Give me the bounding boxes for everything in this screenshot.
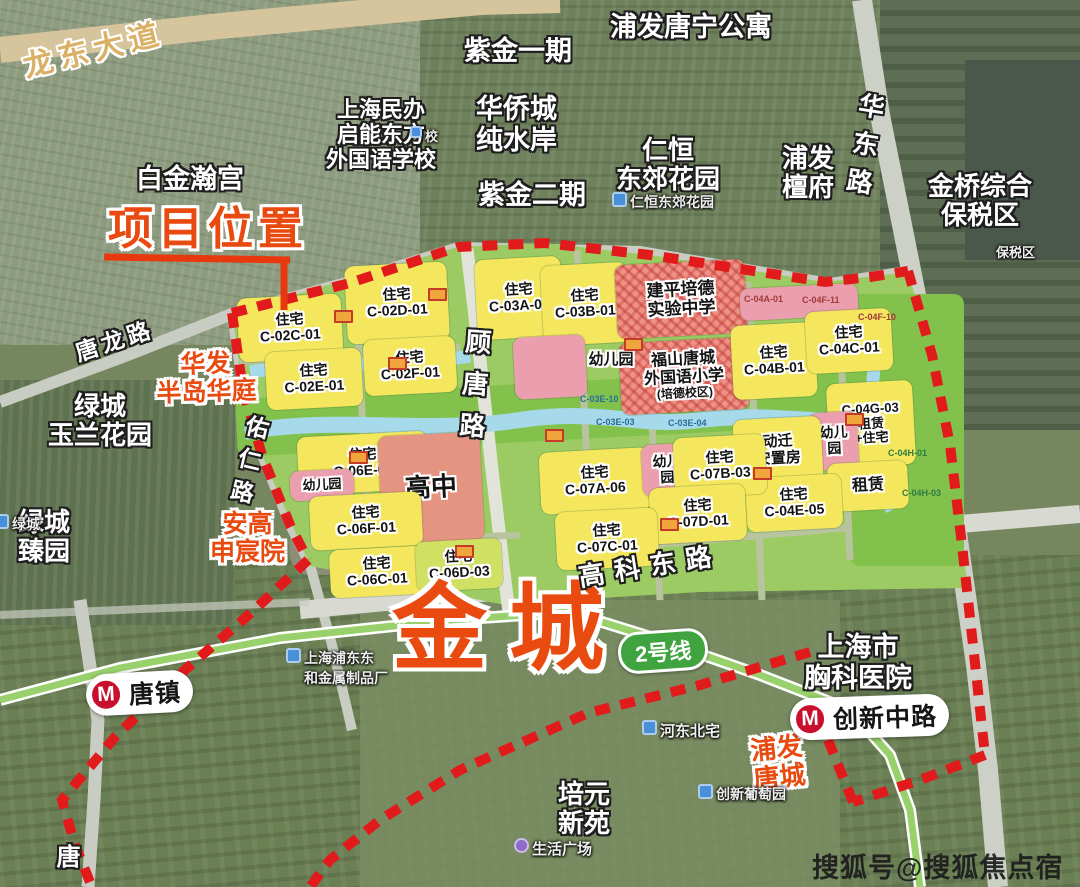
tiny-code: C-03E-03: [596, 417, 635, 427]
parcel-marker: [753, 467, 772, 480]
poi-icon: [642, 720, 657, 735]
poi-text: 创新葡萄园: [716, 784, 786, 804]
poi-text: 仁恒东郊花园: [630, 192, 714, 212]
landmark-chest-hospital: 上海市 胸科医院: [804, 632, 912, 693]
poi-icon: [0, 514, 9, 529]
watermark: 搜狐号@搜狐焦点宿州站: [812, 846, 1080, 887]
tiny-code: C-04H-03: [902, 488, 941, 498]
parcel-label: 住宅 C-04B-01: [743, 344, 805, 379]
minor-road: [0, 602, 310, 615]
landmark-lvcheng-yulan: 绿城 玉兰花园: [48, 392, 152, 451]
parcel-label: 住宅 C-03B-01: [554, 287, 616, 322]
landmark-huaqiaocheng: 华侨城 纯水岸: [476, 94, 557, 155]
poi-text: 河东北宅: [660, 720, 720, 741]
parcel-C-07D-01: 住宅 C-07D-01: [649, 484, 748, 545]
poi-text: 生活广场: [532, 838, 592, 859]
poi-text: 校: [425, 126, 438, 145]
tiny-code: C-03E-10: [580, 394, 619, 404]
metro-line2-badge: 2号线: [617, 627, 710, 675]
tiny-code: C-04F-11: [802, 295, 840, 305]
landmark-renheng: 仁恒 东郊花园: [616, 136, 720, 195]
landmark-angao: 安高 申宸院: [210, 510, 285, 567]
landmark-zijin-phase1: 紫金一期: [464, 36, 572, 67]
landmark-pufa-tangning: 浦发唐宁公寓: [610, 12, 772, 43]
school-campus-label: (培德校区): [657, 386, 714, 402]
parcel-label: 住宅 C-02E-01: [283, 362, 344, 397]
landmark-peiyuan: 培元 新苑: [558, 780, 610, 839]
parcel-marker: [334, 310, 353, 323]
poi-renheng-small: 仁恒东郊花园: [612, 192, 714, 212]
metro-logo-icon: M: [793, 703, 826, 736]
poi-baoshui-small: 保税区: [996, 242, 1035, 261]
parcel-marker: [349, 451, 368, 464]
parcel-label: 住宅 C-07A-06: [564, 464, 626, 499]
poi-putaoyuan: 创新葡萄园: [698, 784, 786, 804]
kindergarten-label: 幼儿园: [302, 477, 342, 494]
parcel-label: 住宅 C-04E-05: [763, 486, 824, 521]
tiny-code: C-04H-01: [888, 448, 927, 458]
metro-logo-icon: M: [89, 678, 123, 712]
parcel-label: 住宅 C-02D-01: [366, 286, 428, 321]
kindergarten-parcel: [512, 334, 587, 400]
landmark-jinqiao-bonded-zone: 金桥综合 保税区: [928, 172, 1032, 231]
road-label-tang-partial: 唐: [52, 844, 79, 868]
parcel-marker: [660, 518, 679, 531]
poi-metal-factory: 上海浦东东 和金属制品厂: [286, 648, 388, 688]
metro-station-tangzhen: M 唐镇: [85, 669, 194, 717]
kindergarten-label: 幼儿园: [578, 352, 644, 369]
project-location-callout: 项目位置: [108, 204, 308, 255]
tiny-code: C-04A-01: [744, 294, 783, 304]
parcel-label: 住宅 C-04C-01: [818, 324, 880, 359]
parcel-label: 租赁: [852, 476, 885, 496]
parcel-C-02F-01: 住宅 C-02F-01: [363, 336, 458, 397]
parcel-C-02E-01: 住宅 C-02E-01: [265, 348, 364, 411]
parcel-label: 住宅 C-02C-01: [259, 311, 321, 346]
poi-school-small: 校: [410, 126, 438, 145]
parcel-C-02D-01: 住宅 C-02D-01: [344, 261, 450, 344]
poi-hedong: 河东北宅: [642, 720, 720, 741]
parcel-C-06F-01: 住宅 C-06F-01: [309, 491, 424, 551]
satellite-planning-map: 住宅 C-02C-01 住宅 C-02D-01 住宅 C-02E-01 住宅 C…: [0, 0, 1080, 887]
poi-shenghuo-plaza: 生活广场: [514, 838, 592, 859]
tiny-code: C-03E-04: [668, 418, 707, 428]
tiny-code: C-04F-10: [858, 312, 896, 322]
project-name-overlay: 金城: [392, 576, 626, 683]
poi-icon: [514, 838, 529, 853]
parcel-marker: [845, 413, 864, 426]
school-label: 福山唐城 外国语小学: [643, 349, 725, 389]
poi-icon: [410, 126, 422, 138]
landmark-baijin: 白金瀚宫: [136, 164, 244, 195]
poi-text: 上海浦东东 和金属制品厂: [304, 648, 388, 688]
kindergarten-label: 幼儿 园: [819, 424, 849, 457]
school-parcel-jianping: 建平培德 实验中学: [614, 259, 748, 340]
parcel-C-07A-06: 住宅 C-07A-06: [538, 447, 651, 515]
station-name: 创新中路: [832, 697, 937, 737]
landmark-pufa-tanfu: 浦发 檀府: [782, 144, 834, 203]
poi-lvcheng-small: 绿城: [0, 514, 40, 534]
parcel-label: 住宅 C-07B-03: [689, 449, 751, 484]
parcel-marker: [545, 429, 564, 442]
south-road: [80, 600, 98, 887]
parcel-marker: [388, 357, 407, 370]
landmark-huafa: 华发 半岛华庭: [155, 348, 257, 408]
parcel-marker: [455, 545, 474, 558]
metro-station-chuangxin: M 创新中路: [789, 693, 949, 741]
school-label: 建平培德 实验中学: [646, 278, 716, 320]
parcel-marker: [624, 338, 643, 351]
poi-icon: [698, 784, 713, 799]
poi-text: 保税区: [996, 242, 1035, 261]
poi-icon: [612, 192, 627, 207]
poi-icon: [286, 648, 301, 663]
poi-text: 绿城: [12, 514, 40, 534]
parcel-label: 住宅 C-06F-01: [336, 504, 397, 539]
station-name: 唐镇: [128, 673, 182, 712]
parcel-label: 住宅 C-07C-01: [576, 522, 638, 557]
landmark-zijin-phase2: 紫金二期: [478, 180, 586, 211]
parcel-marker: [428, 288, 447, 301]
